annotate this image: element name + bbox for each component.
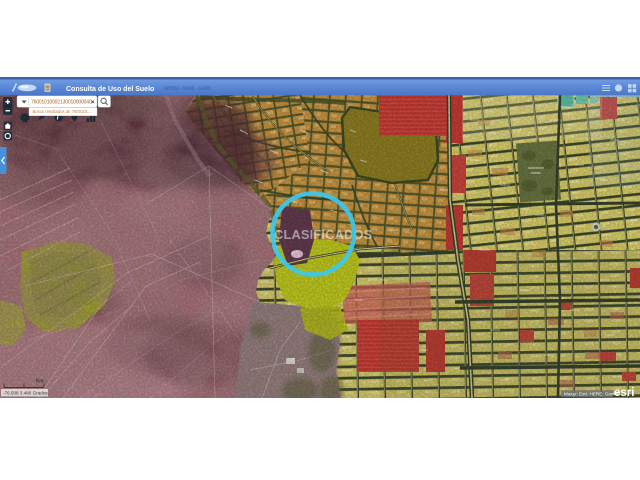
svg-text:Km: Km [36, 379, 44, 385]
svg-text:Maxar, Esri, HERE, Garmin: Maxar, Esri, HERE, Garmin [564, 391, 620, 396]
svg-text:esri: esri [614, 387, 634, 399]
svg-text:SEPDU - SDUC - GADC: SEPDU - SDUC - GADC [164, 85, 211, 90]
svg-text:CLASIFICADOS: CLASIFICADOS [274, 227, 373, 242]
svg-text:-76.508 3.480 Grados: -76.508 3.480 Grados [3, 390, 48, 395]
svg-text:Busca resultados de 7600101...: Busca resultados de 7600101... [33, 109, 92, 114]
svg-text:Consulta de Uso del Suelo: Consulta de Uso del Suelo [66, 86, 154, 93]
svg-text:×: × [91, 99, 95, 106]
svg-text:76001010002130010000040: 76001010002130010000040 [31, 100, 92, 106]
